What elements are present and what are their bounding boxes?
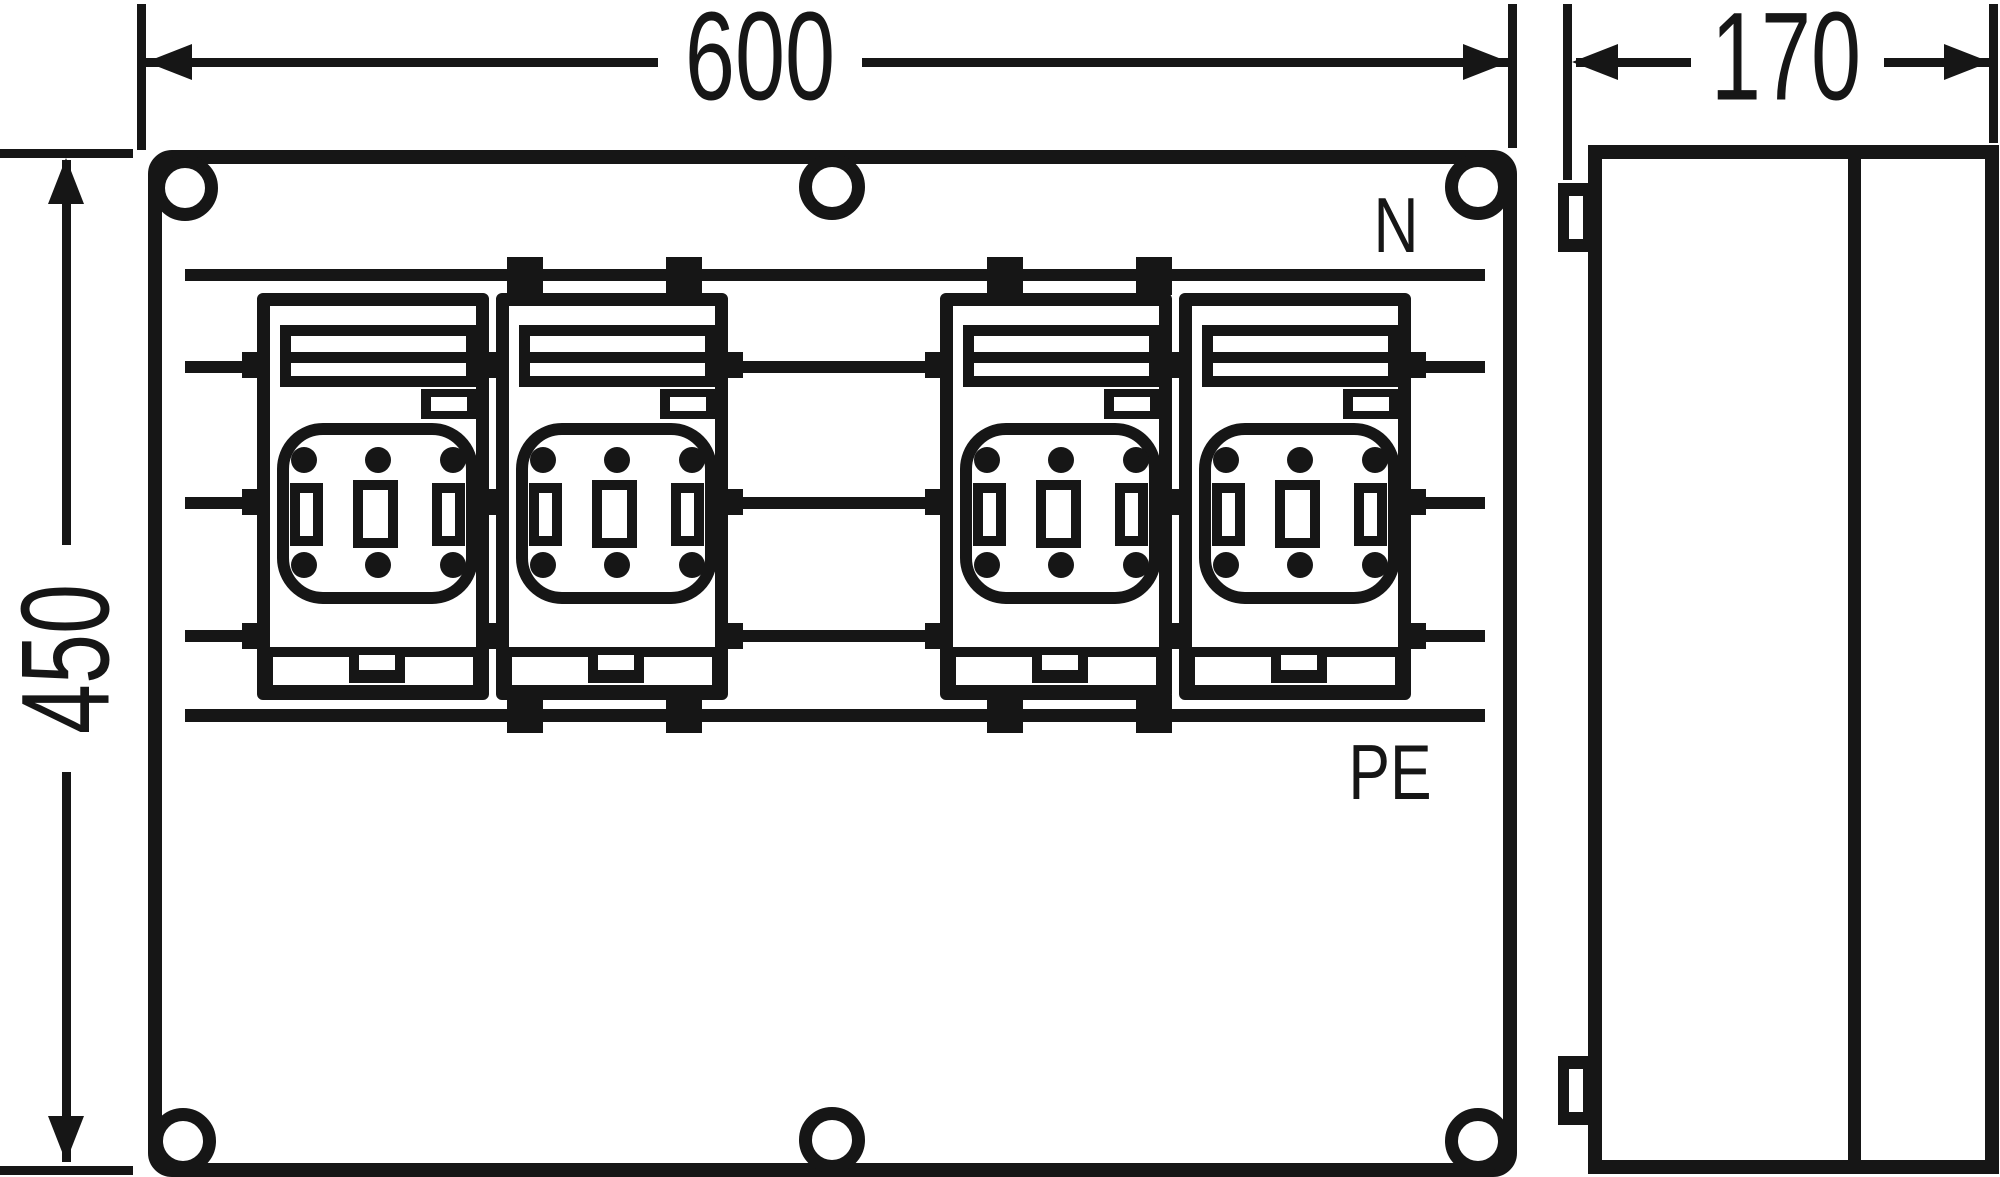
pe-busbar-label: PE	[1348, 733, 1431, 811]
busbar-clamp	[666, 695, 702, 733]
indicator-window	[1104, 389, 1160, 419]
carrier-screw	[365, 552, 391, 578]
busbar-clamp	[1136, 257, 1172, 295]
indicator-window	[660, 389, 716, 419]
carrier-screw	[604, 447, 630, 473]
cover-screw-top-middle	[799, 154, 865, 220]
terminal-stub	[481, 352, 499, 378]
dim-height-arrow-up	[48, 158, 84, 204]
carrier-screw	[1213, 447, 1239, 473]
carrier-screw	[530, 552, 556, 578]
carrier-screw	[974, 447, 1000, 473]
cover-screw-bottom-middle	[799, 1107, 865, 1173]
bottom-terminal-tab	[1271, 647, 1327, 683]
busbar-clamp	[507, 695, 543, 733]
carrier-screw	[1362, 552, 1388, 578]
busbar-clamp	[1136, 695, 1172, 733]
cover-screw-bottom-right	[1445, 1108, 1511, 1174]
terminal-stub	[242, 352, 260, 378]
dim-height-line-bottom	[62, 772, 71, 1162]
mounting-lug-top	[1558, 183, 1592, 252]
busbar-clamp	[507, 257, 543, 295]
fuse-window	[353, 480, 398, 548]
carrier-screw	[974, 552, 1000, 578]
label-strip-divider	[519, 352, 716, 363]
fuse-window	[1036, 480, 1081, 548]
fuse-window	[973, 483, 1006, 546]
terminal-stub	[925, 623, 943, 649]
fuse-switch-unit-1	[257, 293, 489, 700]
bottom-terminal-slot	[359, 655, 395, 670]
technical-drawing-canvas: 600 450 170 N PE	[0, 0, 2000, 1177]
dim-depth-arrow-right	[1944, 44, 1990, 80]
carrier-screw	[1123, 447, 1149, 473]
dim-width-line-right	[862, 58, 1509, 67]
terminal-stub	[242, 489, 260, 515]
fuse-switch-unit-4	[1179, 293, 1411, 700]
neutral-busbar	[185, 269, 1485, 281]
carrier-screw	[291, 447, 317, 473]
dim-height-arrow-down	[48, 1116, 84, 1162]
dim-width-arrow-right	[1463, 44, 1509, 80]
dim-width-extension-left	[137, 4, 146, 150]
indicator-window	[1343, 389, 1399, 419]
fuse-window	[529, 483, 562, 546]
bottom-terminal-slot	[598, 655, 634, 670]
dim-depth-arrow-left	[1572, 44, 1618, 80]
dim-width-arrow-left	[146, 44, 192, 80]
enclosure-side-view	[1588, 145, 1999, 1174]
carrier-screw	[1362, 447, 1388, 473]
carrier-screw	[679, 447, 705, 473]
carrier-screw	[530, 447, 556, 473]
terminal-stub	[1408, 352, 1426, 378]
fuse-window	[1212, 483, 1245, 546]
terminal-stub	[1408, 623, 1426, 649]
cover-screw-top-left	[152, 155, 218, 221]
dim-width-value: 600	[685, 0, 835, 120]
dim-depth-extension-left	[1563, 4, 1572, 180]
dim-width-line-left	[146, 58, 658, 67]
terminal-stub	[481, 623, 499, 649]
indicator-window-glass	[1353, 397, 1389, 411]
label-strip-divider	[1202, 352, 1399, 363]
dim-depth-value: 170	[1711, 0, 1861, 120]
cover-screw-top-right	[1445, 154, 1511, 220]
carrier-screw	[440, 552, 466, 578]
indicator-window-glass	[670, 397, 706, 411]
indicator-window-glass	[1114, 397, 1150, 411]
dim-depth-extension-right	[1989, 4, 1998, 143]
carrier-screw	[604, 552, 630, 578]
neutral-busbar-label: N	[1373, 186, 1418, 264]
bottom-terminal-slot	[1042, 655, 1078, 670]
dim-width-extension-right	[1508, 4, 1517, 148]
mounting-lug-bottom	[1558, 1056, 1592, 1125]
carrier-screw	[679, 552, 705, 578]
bottom-terminal-tab	[588, 647, 644, 683]
terminal-stub	[1164, 352, 1182, 378]
dim-height-value: 450	[4, 584, 129, 734]
carrier-screw	[1048, 447, 1074, 473]
terminal-stub	[1164, 489, 1182, 515]
bottom-terminal-tab	[1032, 647, 1088, 683]
carrier-screw	[1123, 552, 1149, 578]
dim-height-extension-bottom	[0, 1166, 133, 1175]
mounting-lug-slot	[1569, 1069, 1583, 1112]
carrier-screw	[291, 552, 317, 578]
busbar-clamp	[666, 257, 702, 295]
terminal-stub	[481, 489, 499, 515]
cover-screw-bottom-left	[150, 1108, 216, 1174]
carrier-screw	[1287, 447, 1313, 473]
fuse-window	[1115, 483, 1148, 546]
fuse-window	[432, 483, 465, 546]
label-strip-divider	[280, 352, 477, 363]
terminal-stub	[925, 489, 943, 515]
fuse-window	[1354, 483, 1387, 546]
terminal-stub	[725, 623, 743, 649]
terminal-stub	[725, 489, 743, 515]
bottom-terminal-slot	[1281, 655, 1317, 670]
terminal-stub	[925, 352, 943, 378]
terminal-stub	[1164, 623, 1182, 649]
carrier-screw	[365, 447, 391, 473]
terminal-stub	[242, 623, 260, 649]
carrier-screw	[1048, 552, 1074, 578]
fuse-switch-unit-2	[496, 293, 728, 700]
side-view-cover-line	[1848, 152, 1861, 1168]
label-strip-divider	[963, 352, 1160, 363]
bottom-terminal-tab	[349, 647, 405, 683]
indicator-window	[421, 389, 477, 419]
busbar-clamp	[987, 257, 1023, 295]
busbar-clamp	[987, 695, 1023, 733]
dim-height-line-top	[62, 160, 71, 545]
fuse-window	[592, 480, 637, 548]
fuse-window	[1275, 480, 1320, 548]
mounting-lug-slot	[1569, 196, 1583, 239]
carrier-screw	[440, 447, 466, 473]
terminal-stub	[725, 352, 743, 378]
fuse-window	[671, 483, 704, 546]
fuse-switch-unit-3	[940, 293, 1172, 700]
fuse-window	[290, 483, 323, 546]
pe-busbar	[185, 709, 1485, 722]
indicator-window-glass	[431, 397, 467, 411]
carrier-screw	[1287, 552, 1313, 578]
dim-height-extension-top	[0, 149, 133, 158]
carrier-screw	[1213, 552, 1239, 578]
terminal-stub	[1408, 489, 1426, 515]
